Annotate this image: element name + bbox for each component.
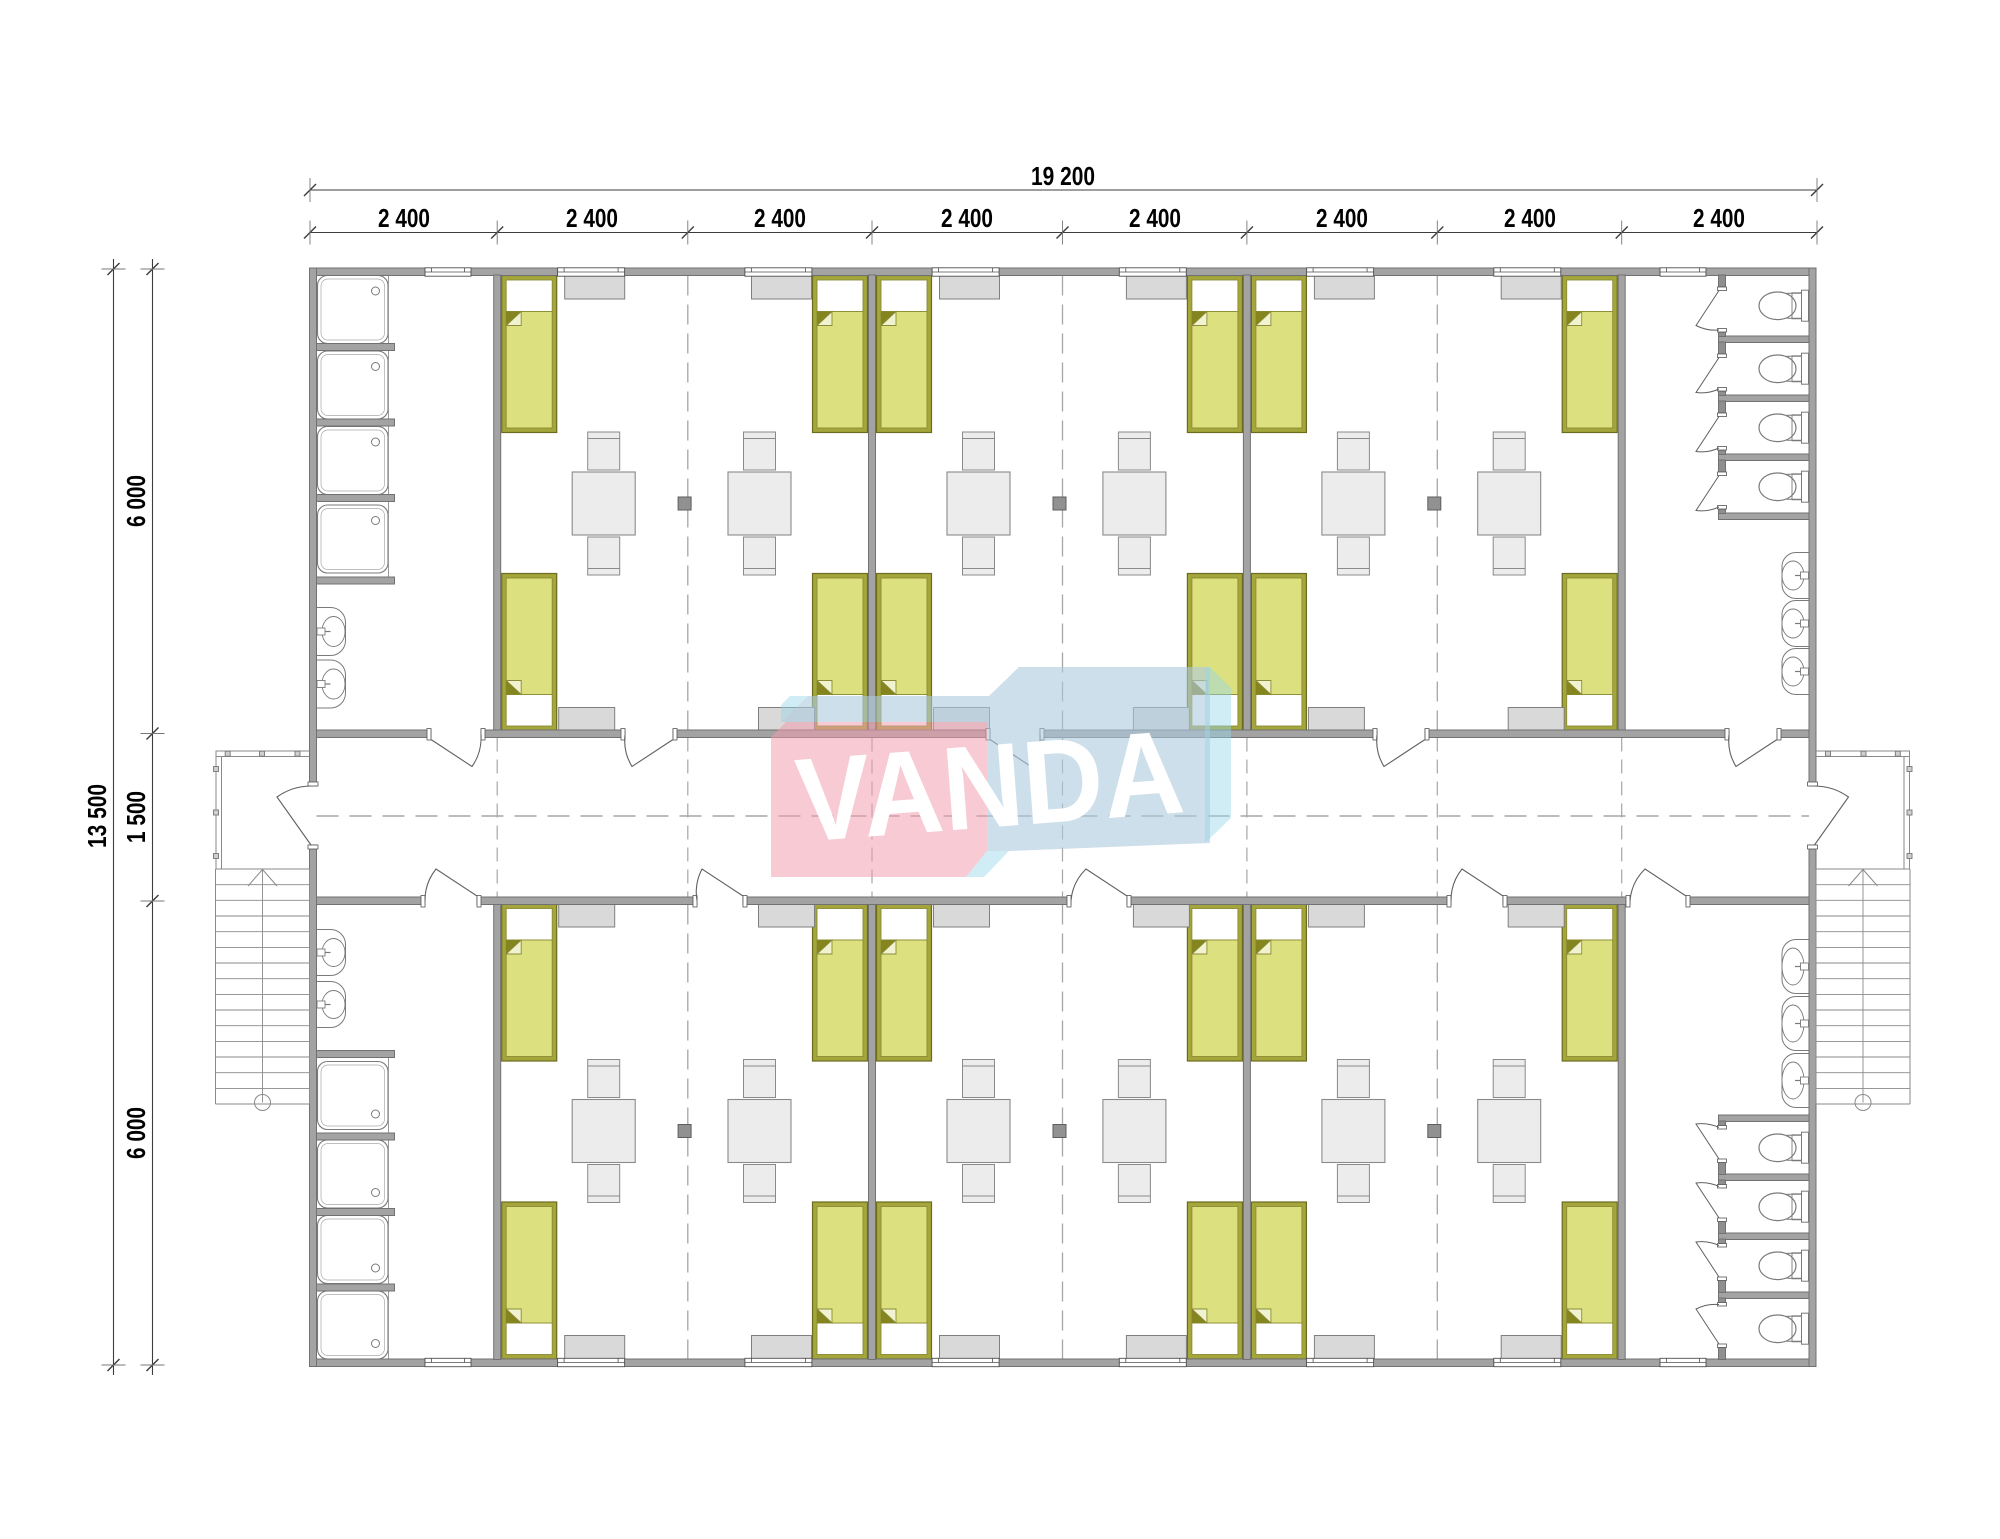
svg-text:2 400: 2 400 — [1693, 203, 1745, 233]
svg-text:6 000: 6 000 — [121, 1107, 151, 1159]
svg-text:2 400: 2 400 — [754, 203, 806, 233]
svg-text:2 400: 2 400 — [1316, 203, 1368, 233]
svg-text:2 400: 2 400 — [566, 203, 618, 233]
svg-text:2 400: 2 400 — [1504, 203, 1556, 233]
svg-text:13 500: 13 500 — [82, 784, 112, 848]
svg-text:2 400: 2 400 — [378, 203, 430, 233]
svg-text:2 400: 2 400 — [1129, 203, 1181, 233]
svg-text:6 000: 6 000 — [121, 475, 151, 527]
svg-text:1 500: 1 500 — [121, 791, 151, 843]
svg-text:19 200: 19 200 — [1031, 161, 1095, 191]
svg-text:2 400: 2 400 — [941, 203, 993, 233]
